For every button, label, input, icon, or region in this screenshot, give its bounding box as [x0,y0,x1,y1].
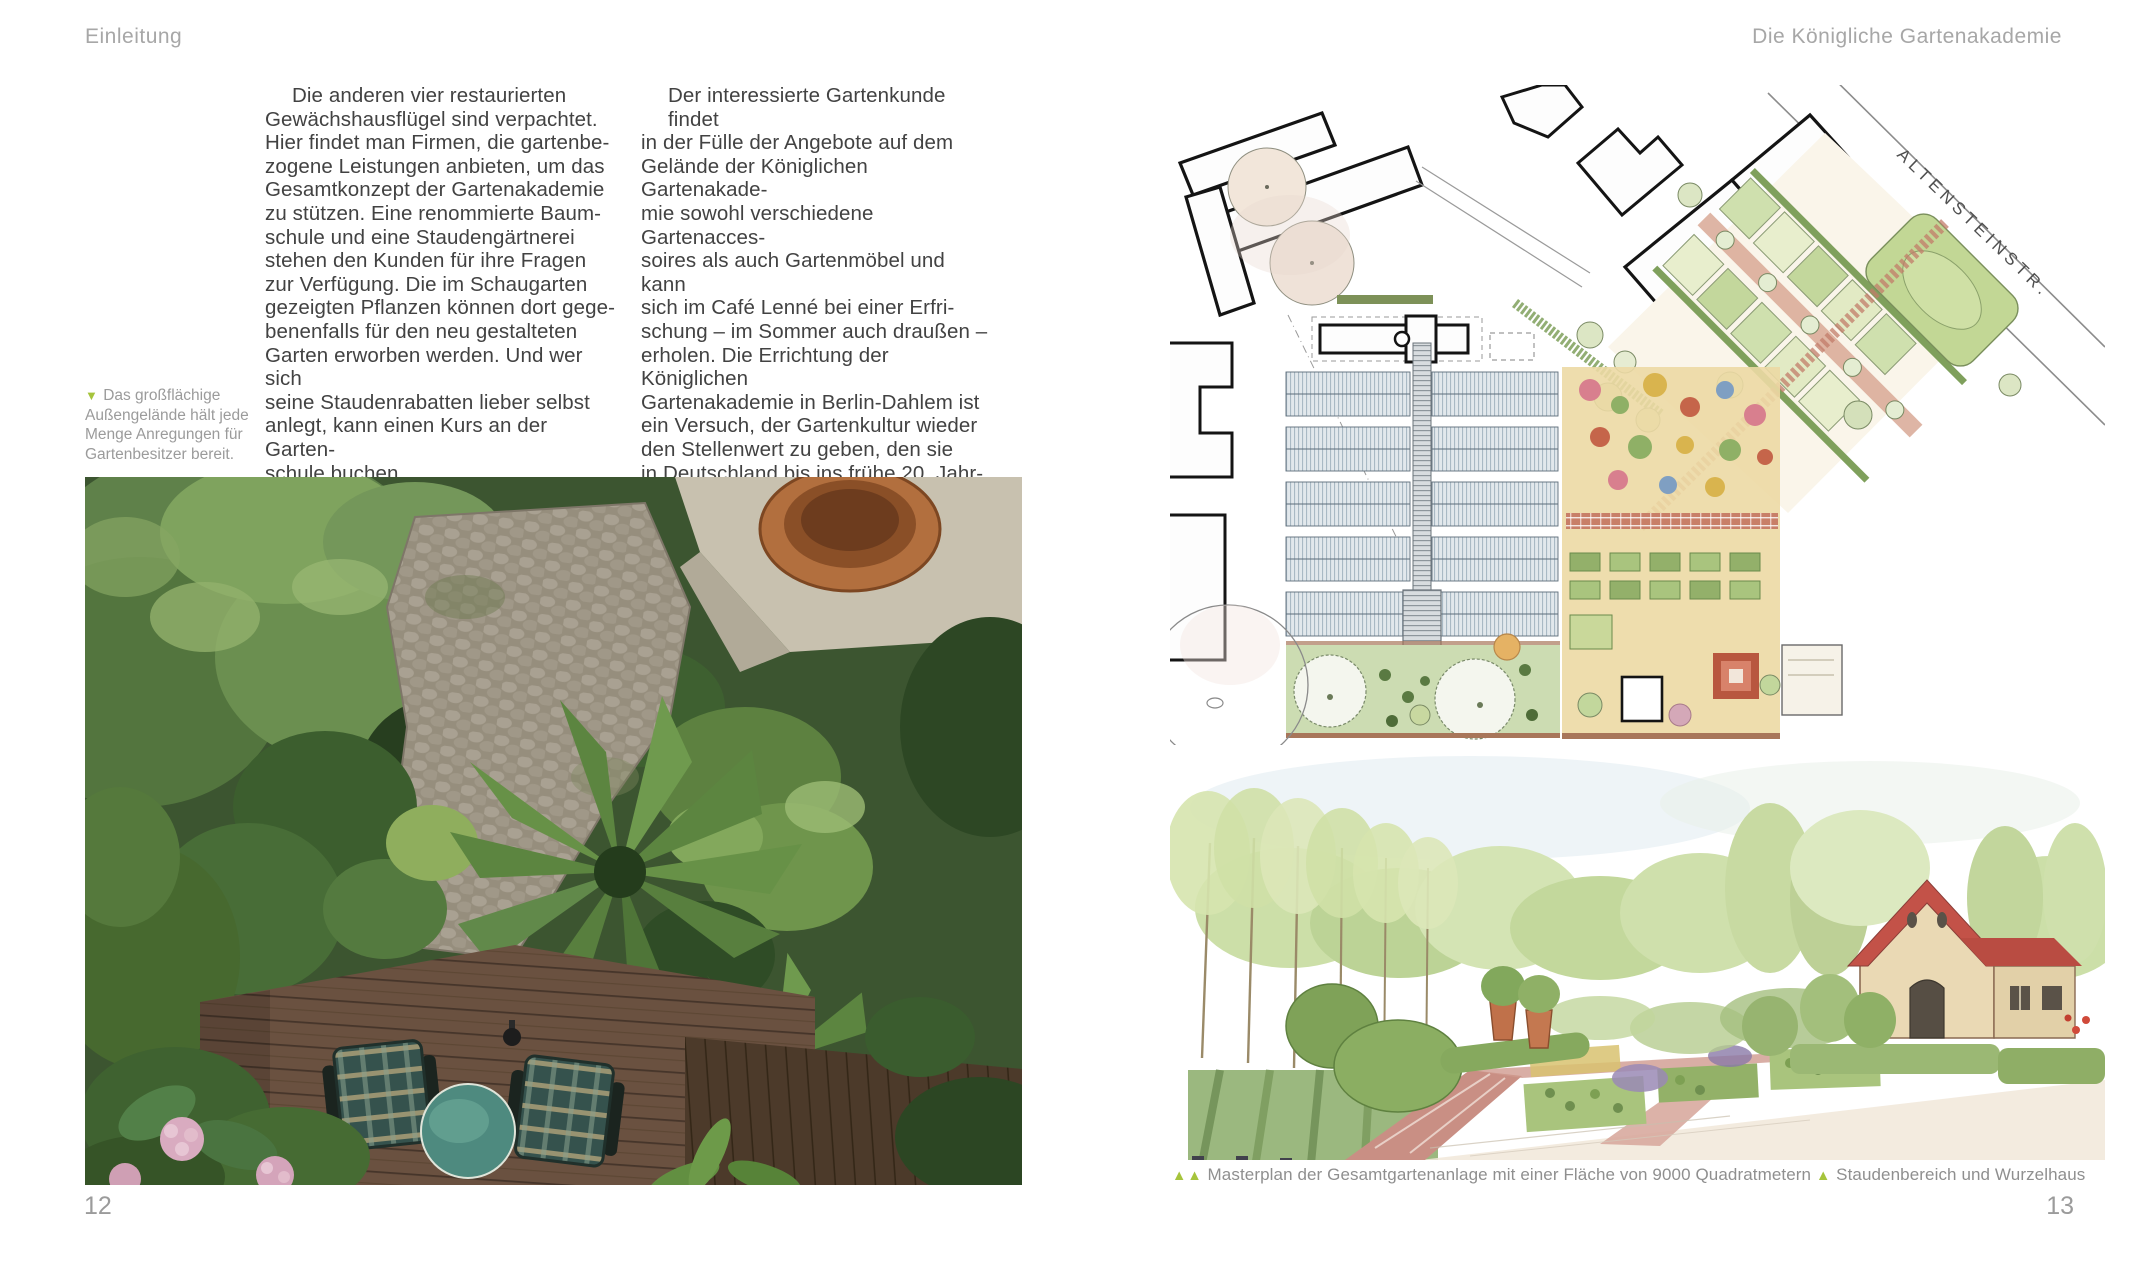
text-line: Gewächshausflügel sind verpachtet. [265,108,617,132]
deck-chair-right [502,1053,628,1168]
text-line: zu stützen. Eine renommierte Baum- [265,202,617,226]
photo-caption-text: Das großflächige Außengelände hält jede … [85,387,249,463]
text-line: in der Fülle der Angebote auf dem [641,131,993,155]
text-line: anlegt, kann einen Kurs an der Garten- [265,414,617,461]
garden-sketch-illustration [1170,748,2105,1160]
text-line: ein Versuch, der Gartenkultur wieder [641,414,993,438]
triangle-up-double-icon: ▲▲ [1172,1168,1203,1184]
text-line: erholen. Die Errichtung der Königlichen [641,344,993,391]
book-spread: Einleitung Die anderen vier restaurierte… [0,0,2142,1280]
caption-masterplan-text: Masterplan der Gesamtgartenanlage mit ei… [1208,1165,1812,1184]
text-line: Gartenakademie in Berlin-Dahlem ist [641,391,993,415]
text-line: schule und eine Staudengärtnerei [265,226,617,250]
illustration-caption: ▲▲ Masterplan der Gesamtgartenanlage mit… [1172,1165,2112,1185]
garden-sketch-graphic [1170,748,2105,1160]
hedge-strip [1337,295,1433,304]
page-number-right: 13 [2046,1192,2074,1221]
text-line: Garten erworben werden. Und wer sich [265,344,617,391]
garden-aerial-photo [85,477,1022,1185]
running-head-right: Die Königliche Gartenakademie [1752,25,2062,49]
masterplan-graphic: ALTENSTEINSTR. [1170,85,2105,745]
triangle-down-icon: ▼ [85,388,99,403]
text-line: Hier findet man Firmen, die gartenbe- [265,131,617,155]
text-line: Gesamtkonzept der Gartenakademie [265,178,617,202]
text-line: zur Verfügung. Die im Schaugarten [265,273,617,297]
text-line: Gelände der Königlichen Gartenakade- [641,155,993,202]
page-number-left: 12 [84,1192,112,1221]
text-line: Die anderen vier restaurierten [265,84,617,108]
text-line: soires als auch Gartenmöbel und kann [641,249,993,296]
masterplan-illustration: ALTENSTEINSTR. [1170,85,2105,745]
running-head-left: Einleitung [85,25,182,49]
triangle-up-icon: ▲ [1816,1168,1831,1184]
caption-sketch-text: Staudenbereich und Wurzelhaus [1836,1165,2085,1184]
photo-caption: ▼ Das großflächige Außengelände hält jed… [85,386,257,464]
text-line: gezeigten Pflanzen können dort gege- [265,296,617,320]
red-pavilion [1713,653,1759,699]
text-line: Der interessierte Gartenkunde findet [641,84,993,131]
text-line: den Stellenwert zu geben, den sie [641,438,993,462]
text-line: zogene Leistungen anbieten, um das [265,155,617,179]
wurzelhaus-footprint [1622,677,1662,721]
garden-aerial-photo-graphic [85,477,1022,1185]
text-line: schung – im Sommer auch draußen – [641,320,993,344]
round-table [421,1084,515,1178]
text-line: seine Staudenrabatten lieber selbst [265,391,617,415]
text-line: mie sowohl verschiedene Gartenacces- [641,202,993,249]
terracotta-bowl [760,477,940,591]
show-garden-band [1286,641,1560,739]
text-line: stehen den Kunden für ihre Fragen [265,249,617,273]
text-line: sich im Café Lenné bei einer Erfri- [641,296,993,320]
text-line: benenfalls für den neu gestalteten [265,320,617,344]
